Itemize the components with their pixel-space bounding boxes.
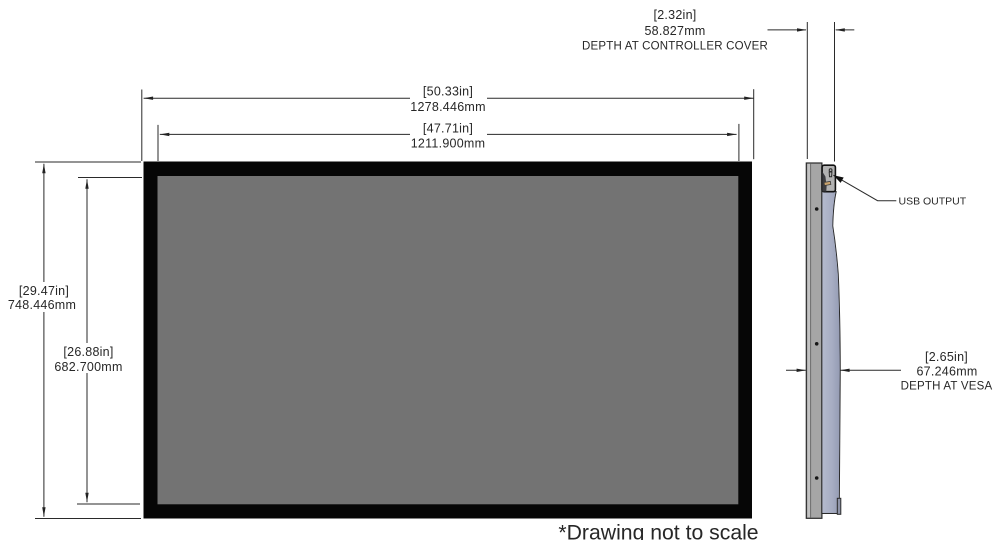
svg-text:USB OUTPUT: USB OUTPUT xyxy=(899,196,967,208)
svg-text:DEPTH AT CONTROLLER COVER: DEPTH AT CONTROLLER COVER xyxy=(582,41,768,53)
svg-text:*Drawing not to scale: *Drawing not to scale xyxy=(558,521,758,540)
svg-text:58.827mm: 58.827mm xyxy=(644,24,705,38)
svg-text:67.246mm: 67.246mm xyxy=(916,364,977,378)
svg-text:[2.32in]: [2.32in] xyxy=(653,8,696,22)
svg-text:1211.900mm: 1211.900mm xyxy=(411,136,486,150)
svg-text:[2.65in]: [2.65in] xyxy=(925,350,968,364)
svg-text:1278.446mm: 1278.446mm xyxy=(410,100,485,114)
svg-text:DEPTH AT VESA: DEPTH AT VESA xyxy=(901,381,993,393)
svg-text:[26.88in]: [26.88in] xyxy=(63,345,113,359)
svg-text:[50.33in]: [50.33in] xyxy=(423,85,473,99)
svg-text:682.700mm: 682.700mm xyxy=(54,360,122,374)
svg-text:748.446mm: 748.446mm xyxy=(8,298,76,312)
svg-text:[47.71in]: [47.71in] xyxy=(423,121,473,135)
svg-text:[29.47in]: [29.47in] xyxy=(19,284,69,298)
